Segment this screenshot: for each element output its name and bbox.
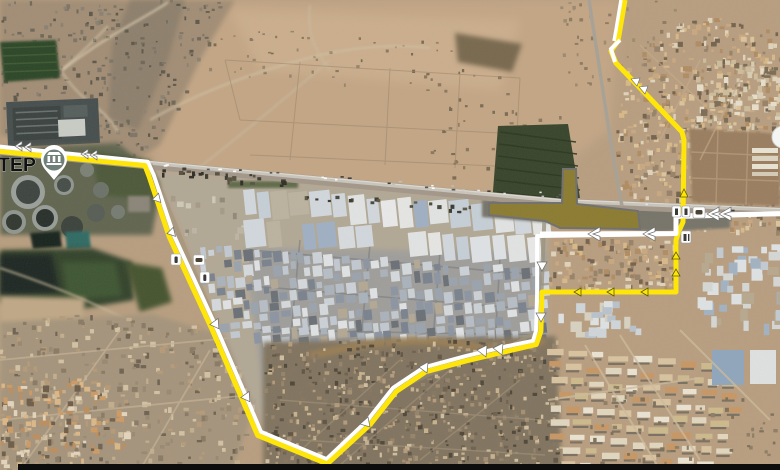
svg-text:TEP: TEP (0, 154, 36, 176)
